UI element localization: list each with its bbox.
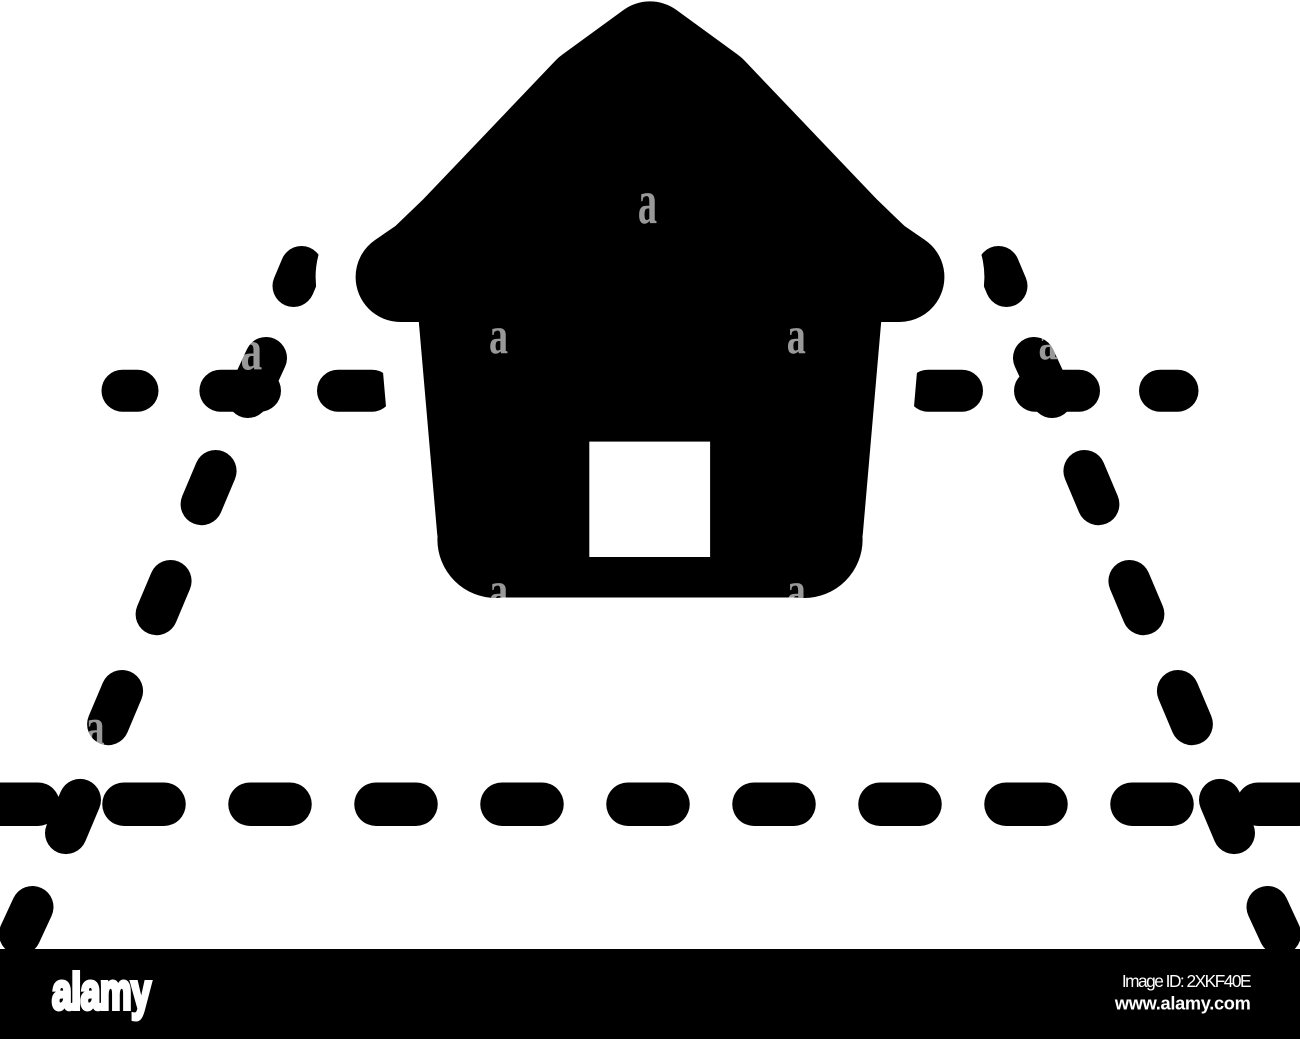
svg-text:a: a [787, 306, 806, 365]
svg-text:a: a [1038, 312, 1057, 371]
svg-text:a: a [241, 319, 263, 383]
svg-text:a: a [489, 561, 508, 620]
svg-text:a: a [787, 561, 806, 620]
svg-text:alamy: alamy [52, 964, 151, 1021]
svg-text:Image ID: 2XKF40E: Image ID: 2XKF40E [1122, 971, 1251, 991]
svg-text:a: a [638, 167, 657, 237]
svg-text:a: a [489, 306, 508, 365]
svg-text:a: a [85, 697, 104, 756]
svg-text:www.alamy.com: www.alamy.com [1114, 993, 1251, 1013]
